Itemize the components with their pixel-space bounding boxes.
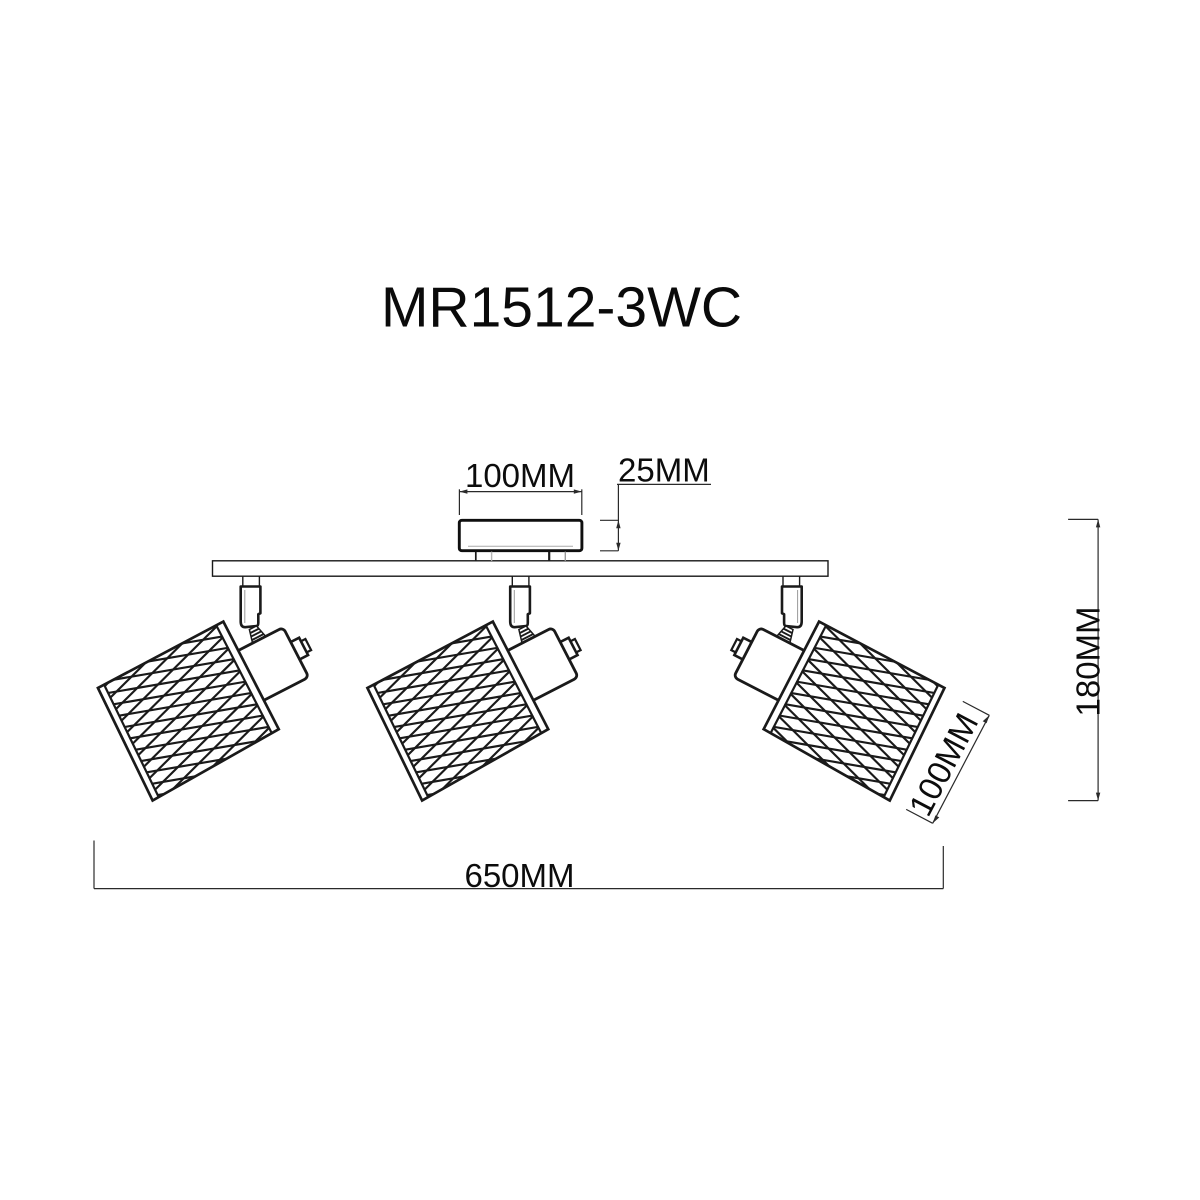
svg-text:180MM: 180MM: [1070, 606, 1107, 716]
svg-text:100MM: 100MM: [465, 457, 575, 494]
svg-text:25MM: 25MM: [618, 452, 710, 489]
svg-text:650MM: 650MM: [464, 857, 574, 894]
svg-text:MR1512-3WC: MR1512-3WC: [381, 276, 742, 340]
